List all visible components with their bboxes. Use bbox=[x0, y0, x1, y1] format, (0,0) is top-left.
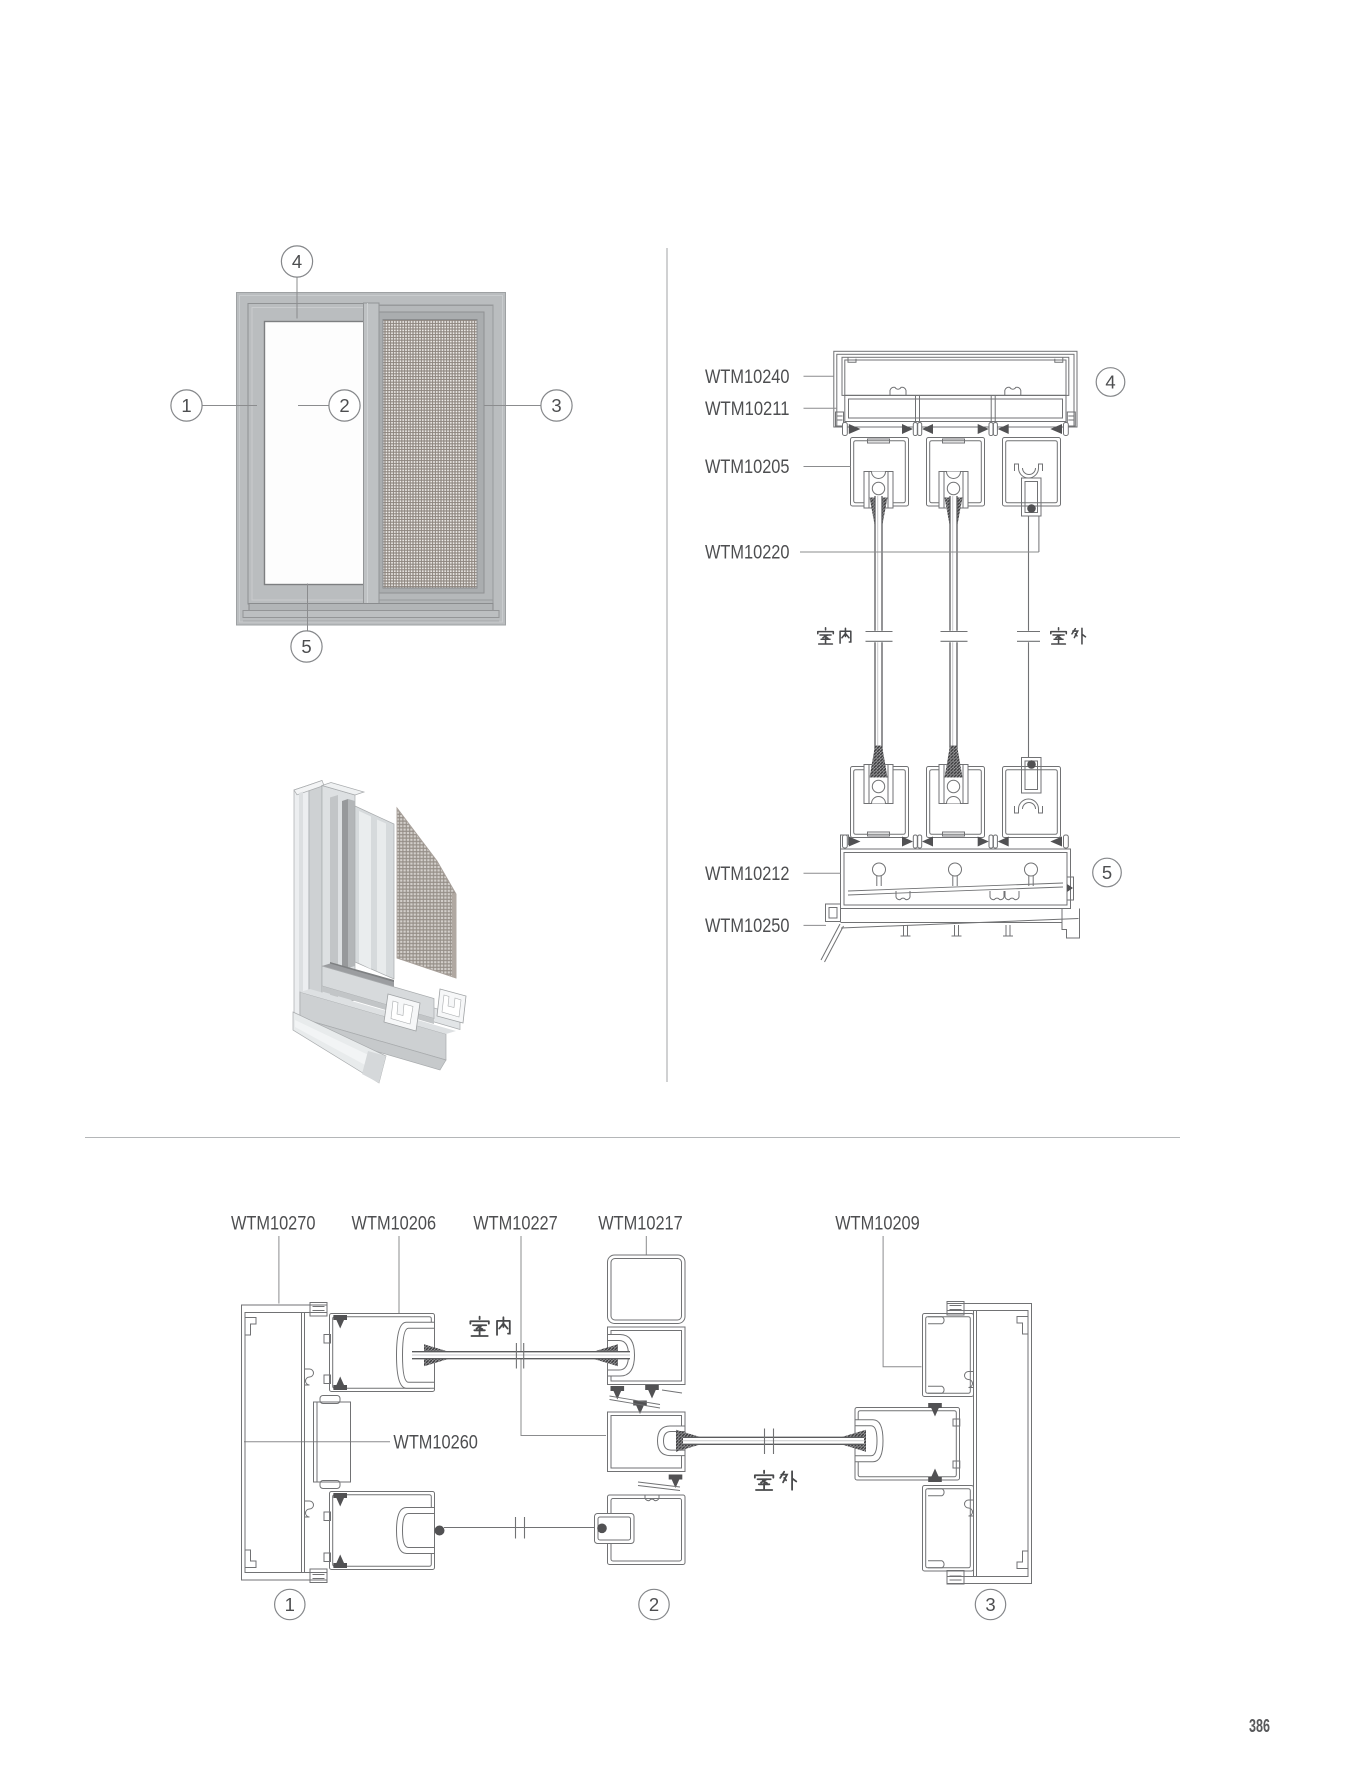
svg-text:3: 3 bbox=[551, 395, 561, 416]
svg-text:WTM10211: WTM10211 bbox=[705, 398, 790, 420]
svg-text:WTM10205: WTM10205 bbox=[705, 456, 790, 478]
svg-text:2: 2 bbox=[649, 1594, 659, 1615]
svg-text:1: 1 bbox=[181, 395, 191, 416]
svg-text:WTM10240: WTM10240 bbox=[705, 366, 790, 388]
svg-text:386: 386 bbox=[1249, 1716, 1270, 1736]
svg-text:WTM10270: WTM10270 bbox=[231, 1213, 316, 1235]
svg-text:4: 4 bbox=[292, 251, 302, 272]
svg-text:WTM10260: WTM10260 bbox=[393, 1432, 478, 1454]
svg-text:5: 5 bbox=[301, 636, 311, 657]
svg-text:WTM10220: WTM10220 bbox=[705, 542, 790, 564]
svg-text:2: 2 bbox=[339, 395, 349, 416]
svg-text:WTM10206: WTM10206 bbox=[352, 1213, 437, 1235]
svg-text:WTM10212: WTM10212 bbox=[705, 863, 790, 885]
svg-text:WTM10217: WTM10217 bbox=[598, 1213, 683, 1235]
svg-text:WTM10227: WTM10227 bbox=[473, 1213, 558, 1235]
svg-text:3: 3 bbox=[985, 1594, 995, 1615]
svg-text:5: 5 bbox=[1102, 862, 1112, 883]
svg-text:WTM10209: WTM10209 bbox=[835, 1213, 920, 1235]
svg-text:WTM10250: WTM10250 bbox=[705, 915, 790, 937]
svg-text:4: 4 bbox=[1105, 372, 1115, 393]
svg-text:1: 1 bbox=[285, 1594, 295, 1615]
